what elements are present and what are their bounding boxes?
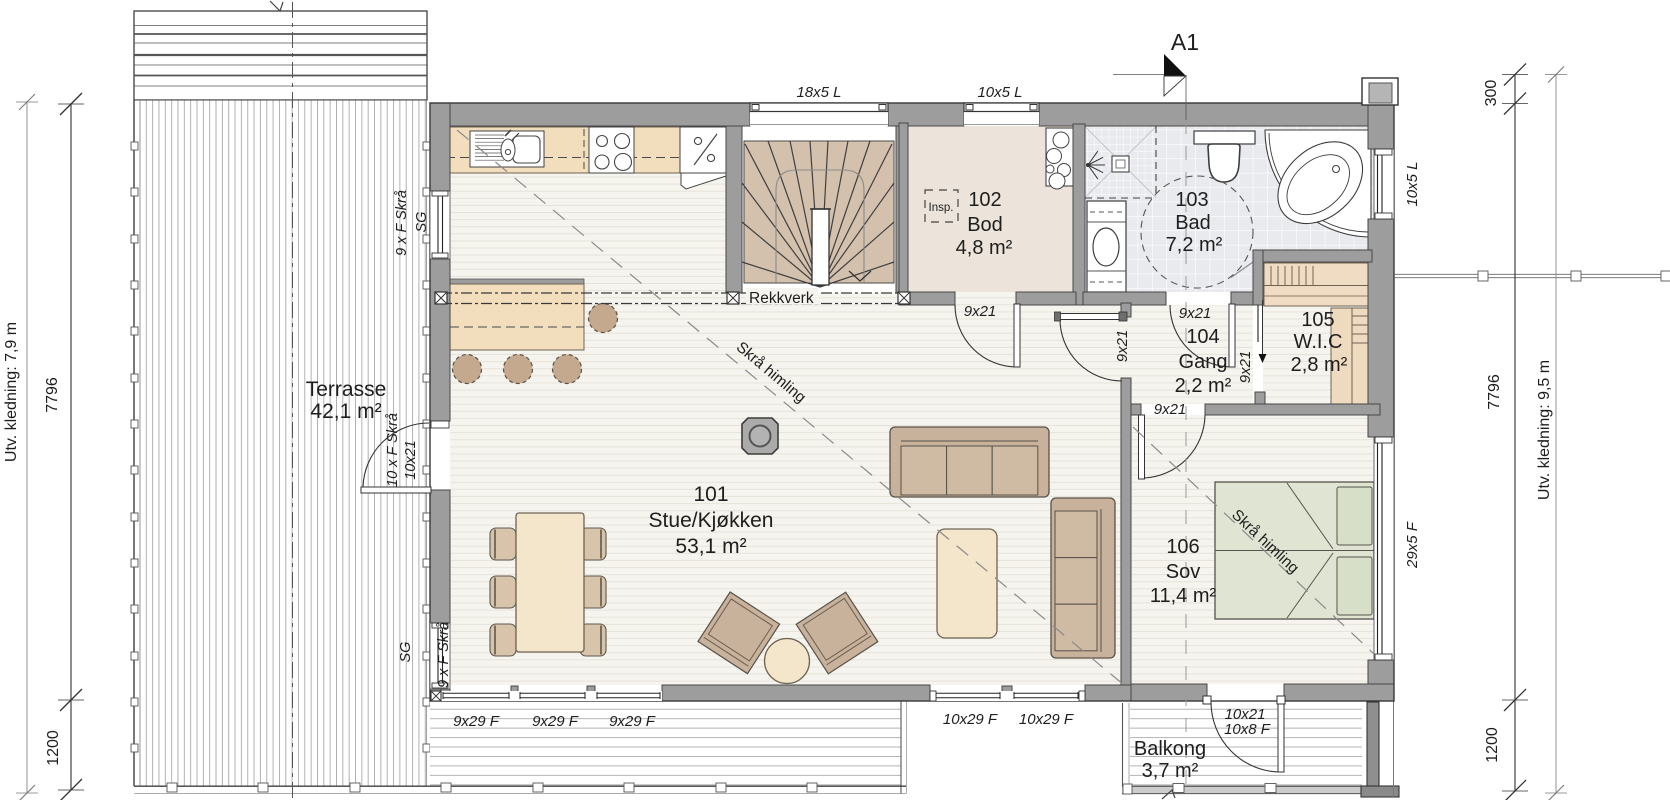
svg-text:SG: SG [414,212,430,233]
svg-text:Utv. kledning: 7,9 m: Utv. kledning: 7,9 m [3,322,20,462]
svg-text:W.I.C: W.I.C [1294,331,1343,353]
svg-text:42,1 m²: 42,1 m² [310,400,381,423]
svg-text:101: 101 [693,483,728,506]
svg-text:Rekkverk: Rekkverk [749,290,814,307]
svg-text:9x29 F: 9x29 F [609,713,656,730]
svg-text:Balkong: Balkong [1134,738,1206,760]
svg-text:3,7 m²: 3,7 m² [1142,760,1199,782]
svg-text:9x29 F: 9x29 F [453,713,500,730]
svg-text:7796: 7796 [1486,374,1503,410]
svg-text:Terrasse: Terrasse [306,378,387,401]
svg-text:105: 105 [1301,309,1334,331]
svg-text:53,1 m²: 53,1 m² [675,535,746,558]
svg-text:9x21: 9x21 [964,303,997,320]
svg-text:10x21: 10x21 [403,440,419,480]
svg-text:Stue/Kjøkken: Stue/Kjøkken [649,509,774,532]
svg-text:SG: SG [398,642,414,663]
svg-text:18x5 L: 18x5 L [796,84,841,101]
svg-text:9 x F Skrå: 9 x F Skrå [436,622,452,688]
svg-text:11,4 m²: 11,4 m² [1150,585,1217,607]
svg-text:9x21: 9x21 [1237,351,1254,384]
svg-text:104: 104 [1186,326,1219,348]
svg-text:7796: 7796 [44,377,61,413]
svg-text:2,2 m²: 2,2 m² [1175,375,1232,397]
svg-text:7,2 m²: 7,2 m² [1166,234,1223,256]
svg-text:Utv. kledning: 9,5 m: Utv. kledning: 9,5 m [1536,360,1553,500]
svg-text:Bad: Bad [1175,212,1211,234]
svg-text:300: 300 [1483,80,1500,107]
svg-text:10x29 F: 10x29 F [943,711,998,728]
svg-text:1200: 1200 [45,730,62,766]
svg-text:10x29 F: 10x29 F [1019,711,1074,728]
svg-text:106: 106 [1166,536,1199,558]
svg-text:Sov: Sov [1166,561,1200,583]
svg-text:1200: 1200 [1484,727,1501,763]
svg-text:103: 103 [1175,189,1208,211]
svg-text:102: 102 [968,189,1001,211]
svg-text:10x5 L: 10x5 L [1404,161,1421,206]
svg-text:9x21: 9x21 [1114,330,1131,363]
svg-text:10x8 F: 10x8 F [1224,721,1271,738]
svg-text:29x5 F: 29x5 F [1404,521,1421,569]
svg-text:A1: A1 [1171,29,1199,55]
svg-text:9 x F Skrå: 9 x F Skrå [394,190,410,256]
svg-text:4,8 m²: 4,8 m² [956,237,1013,259]
svg-text:2,8 m²: 2,8 m² [1291,354,1348,376]
svg-text:Gang: Gang [1179,351,1228,373]
svg-text:Bod: Bod [967,214,1003,236]
svg-text:9x29 F: 9x29 F [532,713,579,730]
svg-text:10x5 L: 10x5 L [977,84,1022,101]
svg-text:9x21: 9x21 [1179,305,1212,322]
svg-text:Insp.: Insp. [929,202,954,214]
svg-text:10 x F Skrå: 10 x F Skrå [385,413,401,487]
svg-text:9x21: 9x21 [1154,401,1187,418]
